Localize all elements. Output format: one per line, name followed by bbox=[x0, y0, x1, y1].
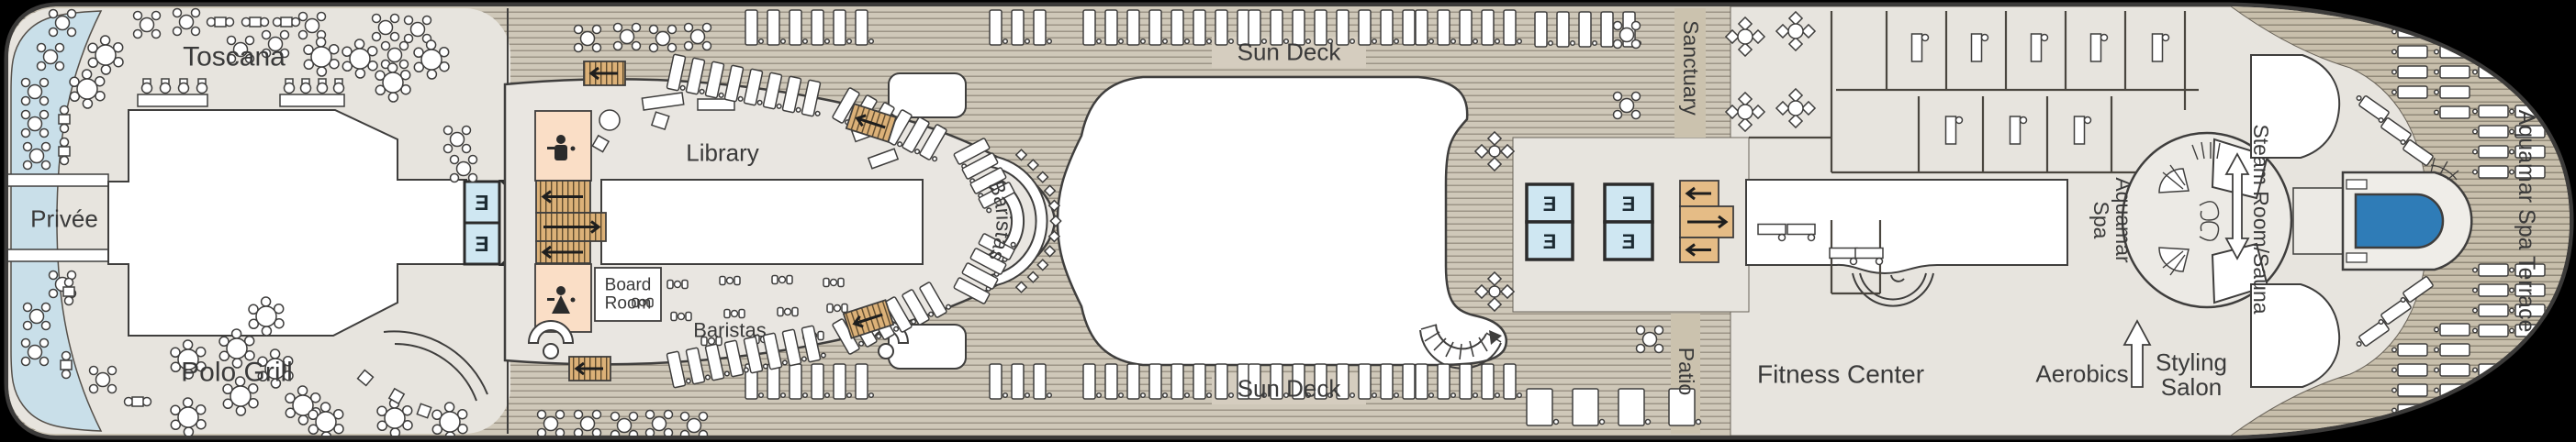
mens-restroom bbox=[535, 111, 591, 181]
lounger-icon bbox=[2392, 364, 2427, 376]
lounger-icon bbox=[2473, 404, 2508, 416]
stairs-icon bbox=[1680, 238, 1719, 262]
lounger-icon bbox=[2392, 344, 2427, 356]
label-fitness-center: Fitness Center bbox=[1757, 360, 1924, 387]
label-aquamar-spa: Aquamar Spa bbox=[2089, 165, 2134, 275]
cafe-table-icon bbox=[671, 313, 691, 321]
dining-table-icon bbox=[242, 17, 269, 27]
chair-icon bbox=[285, 79, 295, 94]
library-room bbox=[601, 180, 923, 264]
elevator-icon: E bbox=[475, 232, 488, 256]
dining-table-icon bbox=[59, 106, 70, 133]
lounger-icon bbox=[2473, 105, 2508, 117]
label-steam-room-sauna: Steam Room/Sauna bbox=[2249, 124, 2271, 314]
chair-icon bbox=[179, 79, 189, 94]
dining-table-icon bbox=[59, 138, 70, 165]
lounger-icon bbox=[2473, 46, 2508, 58]
lounger-icon bbox=[2435, 344, 2470, 356]
lounger-icon bbox=[2473, 146, 2508, 158]
lounger-icon bbox=[2435, 106, 2470, 118]
chair-icon bbox=[334, 79, 344, 94]
chair-icon bbox=[161, 79, 171, 94]
label-sun-deck-bottom: Sun Deck bbox=[1238, 376, 1341, 401]
lounger-icon bbox=[2473, 284, 2508, 296]
cafe-table-icon bbox=[772, 276, 792, 284]
privee-divider bbox=[7, 174, 108, 186]
dining-table-icon bbox=[61, 352, 72, 379]
label-patio: Patio bbox=[1674, 348, 1697, 395]
dining-table-icon bbox=[125, 397, 151, 406]
stairs-icon bbox=[584, 61, 625, 85]
cafe-table-icon bbox=[667, 281, 688, 289]
lounger-icon bbox=[2435, 66, 2470, 78]
cafe-table-icon bbox=[827, 304, 847, 313]
lounger-icon bbox=[2435, 364, 2470, 376]
chair-icon bbox=[142, 79, 152, 94]
dining-table-icon bbox=[207, 17, 234, 27]
lounger-icon bbox=[2473, 126, 2508, 138]
label-baristas: Baristas bbox=[693, 321, 766, 342]
aft-elevators: E E bbox=[465, 182, 499, 264]
label-board-room: Board Room bbox=[599, 276, 657, 313]
cafe-table-icon bbox=[778, 308, 798, 316]
lounger-icon bbox=[2473, 166, 2508, 178]
lounger-icon bbox=[2473, 384, 2508, 396]
deck-plan: E E bbox=[0, 0, 2576, 442]
lounger-icon bbox=[2392, 384, 2427, 396]
lounger-icon bbox=[2473, 264, 2508, 276]
chair-icon bbox=[301, 79, 311, 94]
elevator-icon: E bbox=[1622, 193, 1636, 215]
elevator-icon: E bbox=[1543, 193, 1557, 215]
stairs-icon bbox=[536, 241, 590, 263]
pool-icon bbox=[2356, 194, 2443, 248]
stairs-icon bbox=[1680, 181, 1719, 206]
lounger-icon bbox=[2435, 86, 2470, 98]
elevator-icon: E bbox=[475, 191, 488, 215]
lounger-icon bbox=[2392, 66, 2427, 78]
lounger-icon bbox=[2473, 304, 2508, 316]
stairs-icon bbox=[569, 357, 610, 381]
lounger-icon bbox=[2435, 324, 2470, 336]
privee-divider bbox=[7, 249, 108, 261]
sun-deck-opening bbox=[1058, 77, 1506, 365]
stairs-icon bbox=[536, 213, 606, 241]
spa-pool bbox=[2343, 158, 2471, 270]
elevator-icon: E bbox=[1543, 230, 1557, 253]
lounger-icon bbox=[2473, 325, 2508, 337]
lounger-icon bbox=[2392, 46, 2427, 58]
stairs-icon bbox=[1680, 206, 1733, 238]
label-polo-grill: Polo Grill bbox=[181, 358, 293, 386]
cafe-table-icon bbox=[724, 310, 745, 318]
label-aerobics: Aerobics bbox=[2035, 361, 2128, 386]
label-sanctuary: Sanctuary bbox=[1679, 20, 1701, 116]
dining-table-icon bbox=[274, 17, 300, 27]
lounger-icon bbox=[2473, 26, 2508, 38]
label-sun-deck-top: Sun Deck bbox=[1238, 39, 1341, 64]
label-privee: Privée bbox=[30, 206, 98, 231]
label-toscana: Toscana bbox=[183, 42, 286, 71]
lounger-icon bbox=[2392, 86, 2427, 98]
stairs-icon bbox=[536, 181, 590, 213]
chair-icon bbox=[318, 79, 328, 94]
cafe-table-icon bbox=[720, 277, 740, 285]
elevator-icon: E bbox=[1622, 230, 1636, 253]
label-library: Library bbox=[686, 140, 758, 165]
cafe-table-icon bbox=[823, 279, 844, 287]
label-styling-salon: Styling Salon bbox=[2141, 350, 2242, 400]
label-aquamar-spa-terrace: Aquamar Spa Terrace bbox=[2514, 110, 2538, 333]
chair-icon bbox=[197, 79, 207, 94]
dining-table-icon bbox=[63, 279, 74, 305]
